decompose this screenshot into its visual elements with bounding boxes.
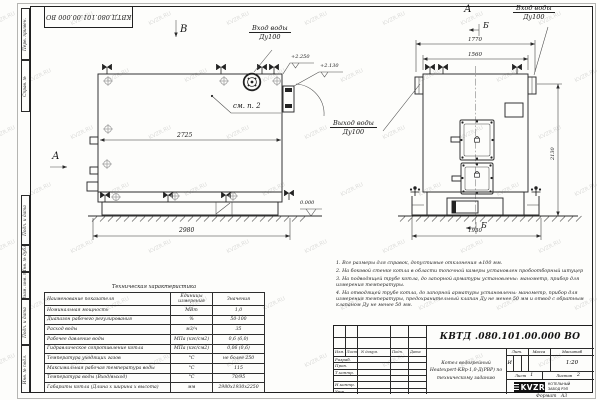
dim-2130: 2130: [550, 147, 556, 160]
spec-table: Наименование показателя Единицы измерени…: [44, 292, 265, 393]
front-inlet-label: Вход воды Ду100: [513, 4, 555, 21]
spec-row: Гидравлическое сопротивление котлаМПа (к…: [45, 344, 265, 354]
col-podp: Подп.: [392, 350, 403, 354]
note-3: 3. На подводящей трубе котла, до запорно…: [336, 277, 590, 290]
row-utv: Утв.: [335, 389, 345, 394]
col-dokum: N докум.: [361, 350, 378, 354]
dim-1770: 1770: [468, 37, 482, 43]
row-nkontr: Н.контр.: [335, 382, 355, 387]
sheet-cell: Лист 1: [506, 371, 542, 379]
format-note: Формат А3: [536, 394, 567, 399]
doc-number: КВТД .080.101.00.000 ВО: [426, 326, 594, 348]
row-prov: Пров.: [335, 363, 347, 368]
spec-row: Температура воды (Вход/выход)°С70/95: [45, 373, 265, 383]
product-name: Котел водогрейный Heatexpert-КВр-1,0-Д(Р…: [426, 348, 506, 394]
spec-row: Максимальная рабочая температура воды°С1…: [45, 363, 265, 373]
drawing-sheet: KVZR.RUKVZR.RUKVZR.RUKVZR.RUKVZR.RUKVZR.…: [0, 0, 600, 400]
spec-header-value: Значения: [213, 293, 265, 306]
side-inlet-title: Вход воды: [249, 24, 291, 33]
row-razrab: Разраб.: [335, 357, 351, 362]
col-izm: Изм.: [335, 350, 344, 354]
spec-row: Расход водым3/ч35: [45, 325, 265, 335]
col-data: Дата: [410, 350, 421, 354]
elevation-mid: +2.130: [320, 63, 339, 69]
spec-header-name: Наименование показателя: [45, 293, 171, 306]
view-a-arrow-label: А: [52, 151, 60, 162]
dim-1560: 1560: [468, 52, 482, 58]
kvzr-logo: KVZR: [514, 382, 545, 393]
spec-row: Температура уходящих газов°Сне более 250: [45, 354, 265, 364]
spec-row: Номинальная мощностьМВт1,0: [45, 306, 265, 316]
note-4: 4. На отводящей трубе котла, до запорной…: [336, 291, 590, 310]
dim-2725: 2725: [177, 132, 192, 139]
note-2: 2. На боковой стенке котла в области топ…: [336, 269, 590, 275]
spec-row: Габариты котла (Длина х ширина х высота)…: [45, 383, 265, 393]
dim-1930: 1930: [468, 228, 482, 234]
side-inlet-size: Ду100: [259, 33, 280, 41]
scale-header: Масштаб: [550, 348, 594, 355]
view-b-label: В: [180, 24, 187, 35]
row-tkontr: Т.контр.: [335, 370, 354, 375]
elevation-top: +2.250: [291, 54, 310, 60]
section-b-top-label: Б: [483, 21, 489, 30]
lit-header: Лит.: [506, 348, 528, 355]
spec-table-title: Техническая характеристика: [44, 284, 264, 290]
front-inlet-size: Ду100: [523, 13, 544, 21]
logo-bars-icon: [514, 384, 519, 391]
lit-value: И: [506, 355, 513, 371]
outlet-label: Выход воды Ду100: [330, 119, 377, 136]
front-view: [383, 24, 582, 240]
spec-row: Диапазон рабочего регулирования%50-100: [45, 315, 265, 325]
note-1: 1. Все размеры для справок, допустимые о…: [336, 261, 590, 267]
outlet-size: Ду100: [343, 128, 364, 136]
scale-value: 1:20: [550, 355, 594, 371]
side-inlet-label: Вход воды Ду100: [249, 24, 291, 41]
dim-2980: 2980: [179, 227, 194, 234]
see-note-ref: см. п. 2: [233, 102, 261, 110]
title-block: КВТД .080.101.00.000 ВО Изм. Лист N доку…: [333, 325, 593, 393]
notes-block: 1. Все размеры для справок, допустимые о…: [336, 261, 590, 311]
front-view-title: А: [464, 4, 472, 15]
elevation-ground: 0.000: [300, 200, 314, 206]
sheets-cell: Листов 2: [542, 371, 594, 379]
spec-row: Рабочее давление водыМПа (кгс/см2)0,6 (6…: [45, 334, 265, 344]
side-view: [50, 20, 343, 240]
col-list: Лист: [347, 350, 358, 354]
mass-header: Масса: [528, 348, 550, 355]
spec-header-unit: Единицы измерения: [171, 293, 213, 306]
outlet-title: Выход воды: [330, 119, 377, 128]
company-name: КОТЕЛЬНЫЙ ЗАВОД РЭП: [548, 382, 570, 392]
front-inlet-title: Вход воды: [513, 4, 555, 13]
